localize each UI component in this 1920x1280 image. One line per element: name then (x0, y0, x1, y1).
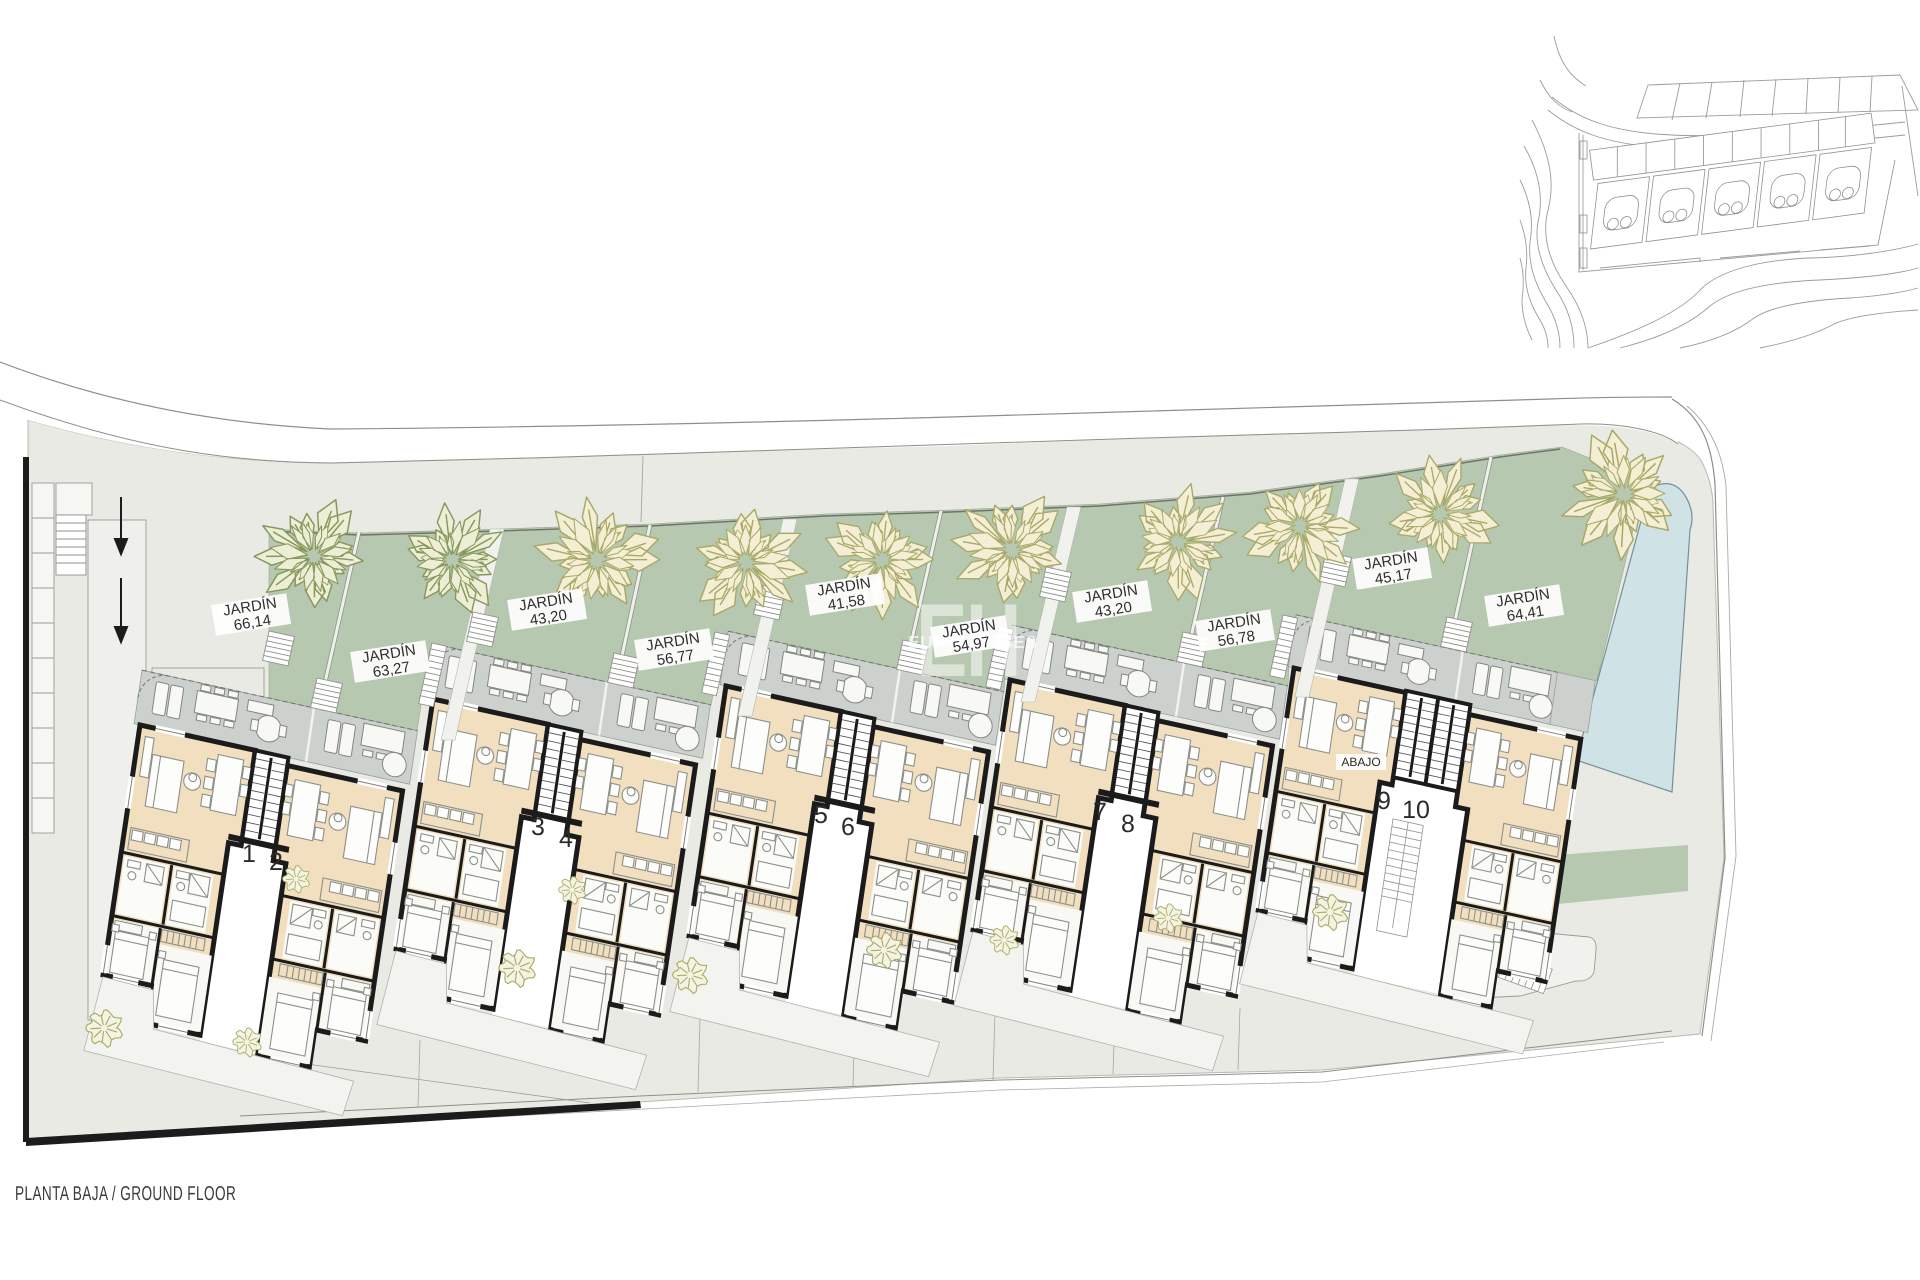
svg-text:PLANTA BAJA / GROUND FLOOR: PLANTA BAJA / GROUND FLOOR (15, 1183, 236, 1205)
svg-text:8: 8 (1121, 810, 1135, 838)
svg-text:9: 9 (1377, 787, 1391, 815)
svg-text:5: 5 (814, 801, 828, 829)
svg-text:10: 10 (1402, 796, 1430, 824)
svg-text:3: 3 (531, 813, 545, 841)
svg-text:6: 6 (841, 813, 855, 841)
svg-text:ABAJO: ABAJO (1341, 755, 1380, 769)
svg-text:7: 7 (1093, 798, 1107, 826)
svg-text:4: 4 (559, 825, 573, 853)
svg-text:2: 2 (269, 848, 283, 876)
svg-text:1: 1 (242, 840, 256, 868)
